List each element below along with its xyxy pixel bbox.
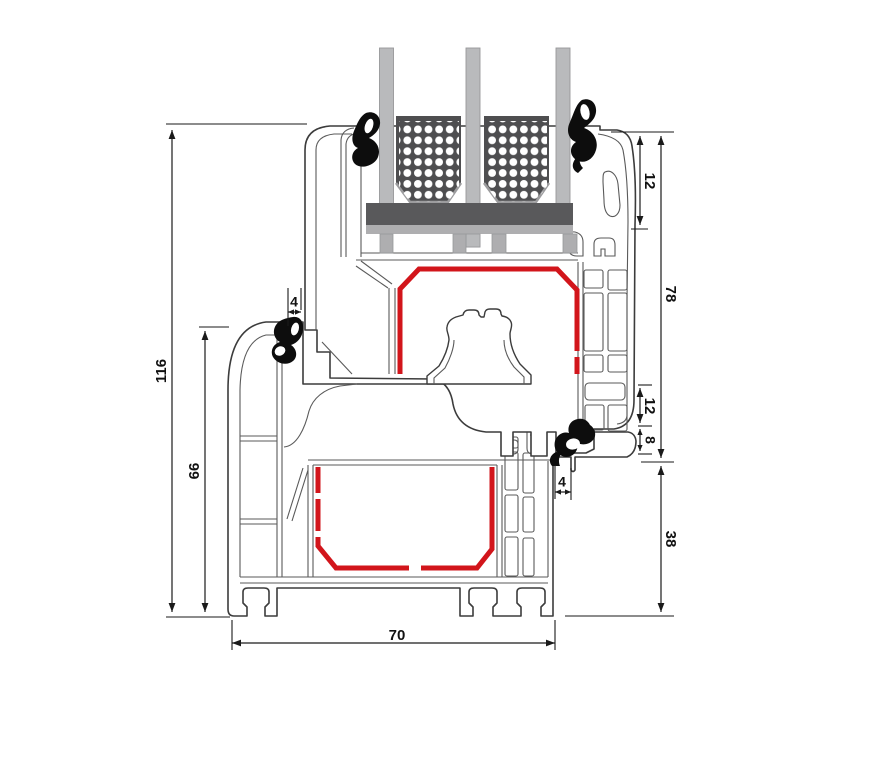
arrowhead-down-icon <box>637 414 644 423</box>
arrowhead-down-icon <box>169 603 176 612</box>
spacer-bar-right <box>484 116 549 202</box>
dim-label-h12a: 12 <box>641 173 658 190</box>
arrowhead-down-icon <box>637 445 642 451</box>
glazing-block-dark <box>366 203 573 225</box>
glazing-unit <box>366 48 577 253</box>
arrowhead-up-icon <box>658 466 665 475</box>
dim-label-h66: 66 <box>186 463 203 480</box>
dim-label-h78: 78 <box>662 286 679 303</box>
arrowhead-up-icon <box>637 429 642 435</box>
arrowhead-down-icon <box>637 216 644 225</box>
arrowhead-down-icon <box>658 603 665 612</box>
dim-h66: 66 <box>186 327 229 612</box>
arrowhead-right-icon <box>295 309 301 314</box>
dim-label-h8: 8 <box>642 436 658 444</box>
window-profile-diagram: 116664127812843870 <box>0 0 877 766</box>
glass-pane-middle-foot <box>466 234 480 247</box>
dim-label-h12b: 12 <box>641 398 658 415</box>
arrowhead-down-icon <box>202 603 209 612</box>
arrowhead-up-icon <box>637 388 644 397</box>
dim-w70: 70 <box>232 620 555 650</box>
arrowhead-up-icon <box>637 136 644 145</box>
dim-h12b: 12 <box>637 385 658 426</box>
glazing-block-light <box>366 225 573 234</box>
dim-label-w70: 70 <box>389 627 406 644</box>
arrowhead-down-icon <box>658 449 665 458</box>
dim-label-h38: 38 <box>662 531 679 548</box>
dim-label-h116: 116 <box>153 359 170 383</box>
dim-h8: 8 <box>637 429 658 454</box>
arrowhead-left-icon <box>288 309 294 314</box>
dim-label-w4a: 4 <box>290 294 298 310</box>
arrowhead-right-icon <box>546 640 555 647</box>
arrowhead-right-icon <box>565 489 571 494</box>
glass-pane-inner <box>556 48 570 205</box>
spacer-bar-left <box>396 116 461 202</box>
arrowhead-up-icon <box>658 136 665 145</box>
arrowhead-left-icon <box>555 489 561 494</box>
arrowhead-up-icon <box>169 130 176 139</box>
arrowhead-left-icon <box>232 640 241 647</box>
dim-w4b: 4 <box>555 465 571 500</box>
dim-h38: 38 <box>565 466 679 616</box>
arrowhead-up-icon <box>202 331 209 340</box>
dim-label-w4b: 4 <box>558 474 566 490</box>
